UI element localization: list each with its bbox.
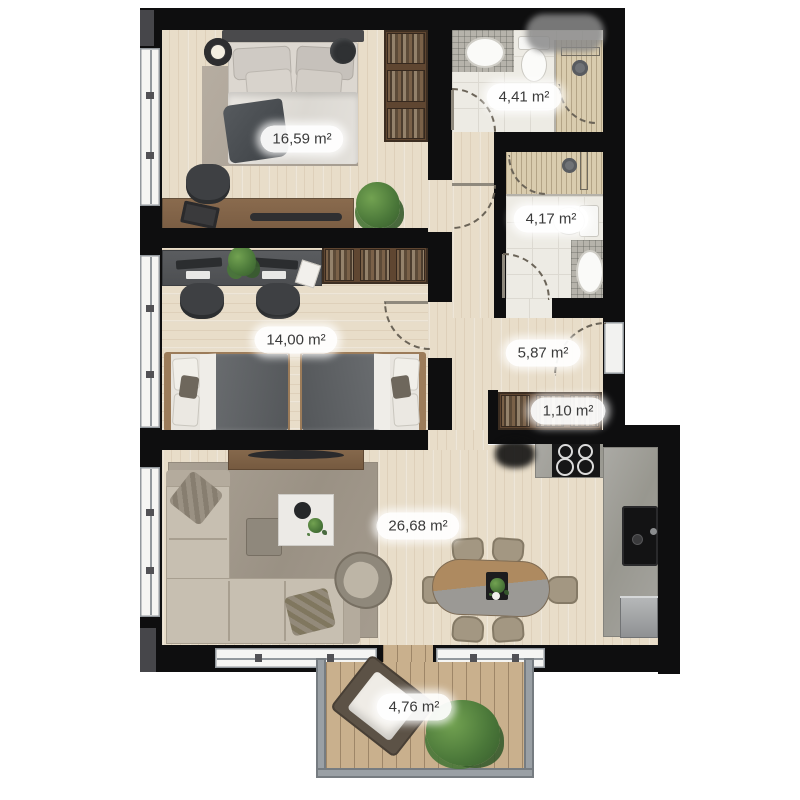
- wall: [428, 8, 452, 180]
- window-mullion: [470, 654, 477, 662]
- bed-pillow: [172, 393, 200, 427]
- desk-chair-bedroom1: [186, 164, 230, 204]
- area-label-bedroom1: 16,59 m²: [260, 126, 343, 153]
- blurred-object: [526, 14, 604, 52]
- window-glass-line: [150, 469, 152, 615]
- window-mullion: [146, 305, 154, 312]
- blurred-object: [495, 440, 535, 468]
- bed-duvet-fold: [200, 353, 216, 430]
- wardrobe-bedroom1: [384, 30, 428, 142]
- window-mullion: [146, 509, 154, 516]
- wall: [428, 358, 452, 430]
- window-mullion: [146, 567, 154, 574]
- kitchen-appliance: [620, 596, 658, 638]
- sink-bathroom2: [576, 250, 604, 294]
- window-mullion: [146, 371, 154, 378]
- cooktop-burner: [578, 444, 593, 459]
- wall: [494, 132, 603, 152]
- wall-corner-cap: [140, 10, 154, 46]
- balcony-railing: [316, 768, 534, 778]
- cooktop-burner: [558, 444, 573, 459]
- window-mullion: [146, 152, 154, 159]
- area-label-bathroom1: 4,41 m²: [487, 84, 562, 111]
- sink-faucet: [650, 528, 657, 535]
- sofa-cushion-divider: [169, 538, 227, 540]
- wall: [140, 430, 428, 450]
- wall: [552, 298, 603, 318]
- area-label-balcony: 4,76 m²: [377, 694, 452, 721]
- window: [140, 255, 160, 428]
- wardrobe-shelf: [501, 395, 530, 427]
- window-mullion: [512, 654, 519, 662]
- window-mullion: [327, 654, 334, 662]
- area-label-closet: 1,10 m²: [531, 398, 606, 425]
- wall: [658, 447, 680, 674]
- cooktop-burner: [577, 458, 594, 475]
- wardrobe-shelf: [325, 249, 354, 281]
- cooktop-burner: [556, 458, 574, 476]
- door-opening-floor: [428, 180, 452, 232]
- wall: [160, 228, 428, 248]
- tv-soundbar: [250, 213, 342, 221]
- bed-accent-pillow: [391, 375, 412, 399]
- floor-plan: 16,59 m² 4,41 m² 4,17 m² 14,00 m² 5,87 m…: [0, 0, 800, 800]
- dining-chair: [491, 615, 525, 643]
- nightstand-lamp-right: [330, 38, 356, 64]
- wall: [428, 232, 452, 302]
- area-label-living-kitchen: 26,68 m²: [376, 513, 459, 540]
- shower-head: [572, 60, 588, 76]
- keyboard: [186, 271, 210, 279]
- window-glass-line: [217, 658, 375, 660]
- wall-corner-cap: [140, 628, 156, 672]
- coffee-table-tray: [294, 502, 311, 519]
- wardrobe-shelf: [396, 249, 425, 281]
- shower2-fixture-bar: [580, 148, 588, 190]
- wardrobe-shelf: [360, 249, 389, 281]
- shower2-head: [562, 158, 577, 173]
- sofa-cushion-divider: [284, 581, 286, 641]
- dining-chair: [451, 615, 485, 643]
- area-label-bedroom2: 14,00 m²: [254, 327, 337, 354]
- plant-bedroom1: [356, 182, 400, 228]
- wardrobe-shelf: [387, 108, 425, 139]
- door-opening-floor: [428, 430, 488, 450]
- wardrobe-bedroom2: [322, 246, 428, 284]
- table-centerpiece-plant: [490, 578, 505, 593]
- keyboard: [262, 271, 286, 279]
- sink-drain: [632, 534, 643, 545]
- balcony-railing: [524, 658, 534, 776]
- bed-duvet-fold: [374, 353, 390, 430]
- wall: [494, 298, 503, 318]
- table-cup: [492, 592, 500, 600]
- wall: [488, 390, 498, 432]
- window: [140, 48, 160, 206]
- wardrobe-shelf: [387, 33, 425, 64]
- bed-duvet: [210, 354, 288, 430]
- door-opening-floor: [428, 302, 452, 358]
- desk-plant: [228, 246, 256, 276]
- single-bed-left: [164, 352, 290, 432]
- ottoman: [246, 518, 282, 556]
- wall: [603, 425, 680, 447]
- dining-chair: [546, 576, 578, 604]
- window: [140, 467, 160, 617]
- cooktop: [552, 440, 600, 477]
- window-mullion: [255, 654, 262, 662]
- nightstand-lamp-left-shade: [211, 45, 225, 59]
- area-label-hallway: 5,87 m²: [506, 340, 581, 367]
- toilet-bathroom1-bowl: [521, 48, 547, 82]
- desk-chair: [180, 283, 224, 319]
- single-bed-right: [300, 352, 426, 432]
- window-mullion: [146, 92, 154, 99]
- coffee-table-plant: [308, 518, 323, 533]
- bed-accent-pillow: [179, 375, 200, 399]
- area-label-bathroom2: 4,17 m²: [514, 206, 589, 233]
- desk-chair: [256, 283, 300, 319]
- window-glass-line: [150, 257, 152, 426]
- shower2-glass-line: [506, 194, 603, 196]
- door-opening-floor: [503, 298, 552, 318]
- window-glass-line: [150, 50, 152, 204]
- bed-duvet: [302, 354, 380, 430]
- sink-bathroom1: [465, 37, 505, 68]
- balcony-railing: [316, 658, 326, 776]
- sofa-cushion-divider: [228, 581, 230, 641]
- tv-screen: [248, 450, 344, 459]
- entrance-door: [604, 322, 624, 374]
- wardrobe-shelf: [387, 70, 425, 101]
